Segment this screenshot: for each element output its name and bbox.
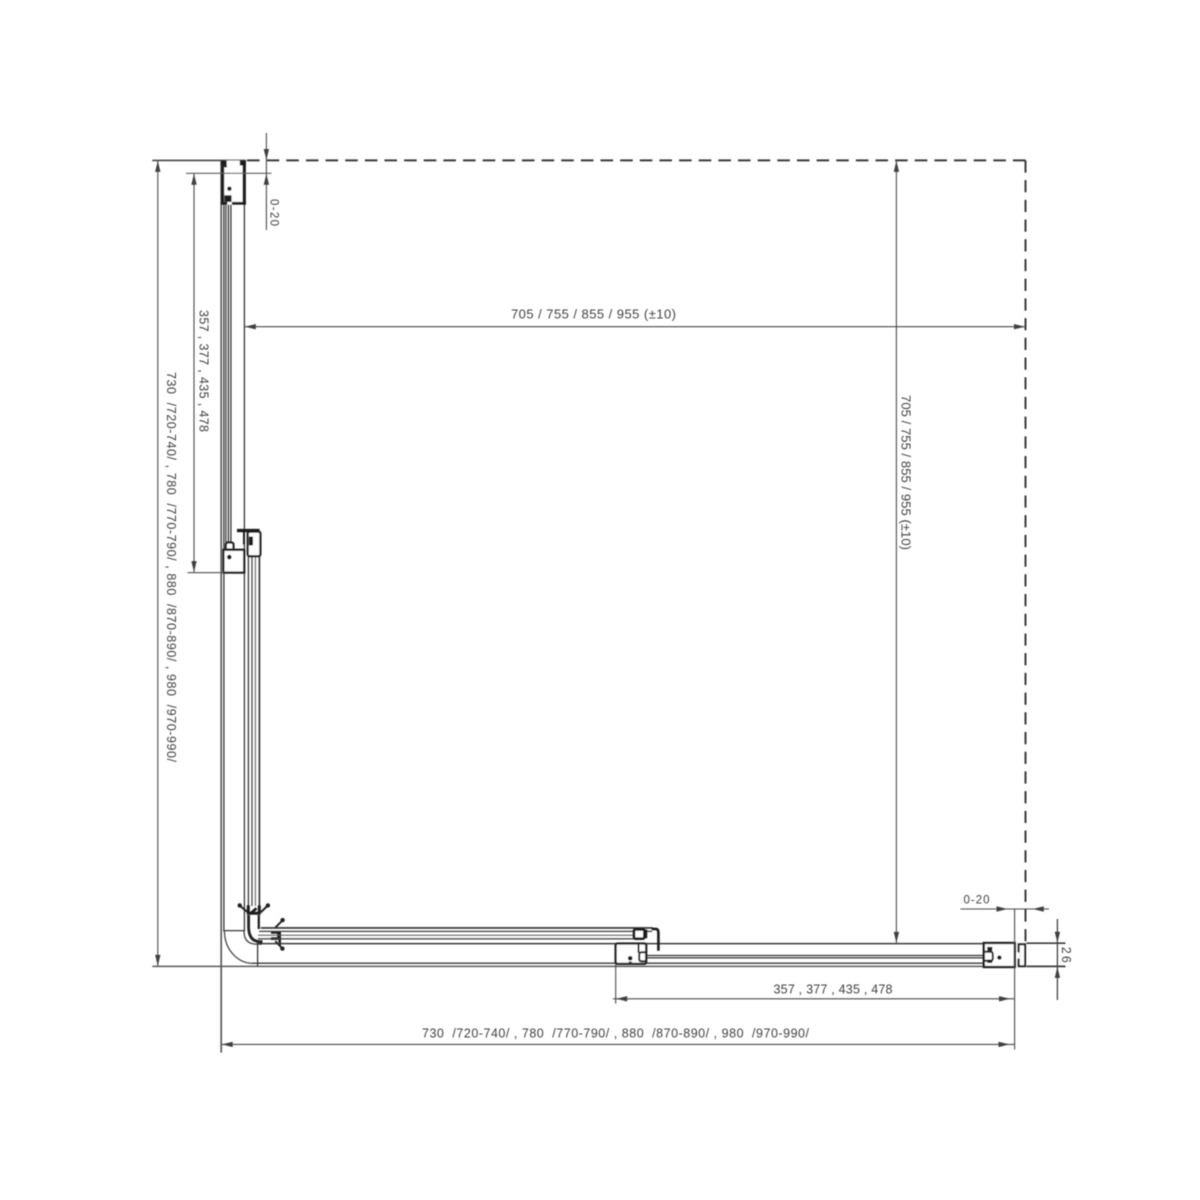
svg-text:357 , 377 , 435 , 478: 357 , 377 , 435 , 478 xyxy=(196,310,210,432)
svg-text:0-20: 0-20 xyxy=(964,895,990,907)
svg-text:730 /720-740/ , 780 /770-790: 730 /720-740/ , 780 /770-790/ , 880 /870… xyxy=(164,372,178,763)
svg-text:357 , 377 , 435 , 478: 357 , 377 , 435 , 478 xyxy=(774,983,893,997)
svg-text:0-20: 0-20 xyxy=(268,199,280,226)
svg-text:730 /720-740/ , 780 /770-790: 730 /720-740/ , 780 /770-790/ , 880 /870… xyxy=(422,1027,810,1041)
svg-text:705 / 755 / 855 / 955 (±10): 705 / 755 / 855 / 955 (±10) xyxy=(511,307,676,322)
svg-text:705 / 755 / 855 / 955 (±10): 705 / 755 / 855 / 955 (±10) xyxy=(899,395,914,550)
